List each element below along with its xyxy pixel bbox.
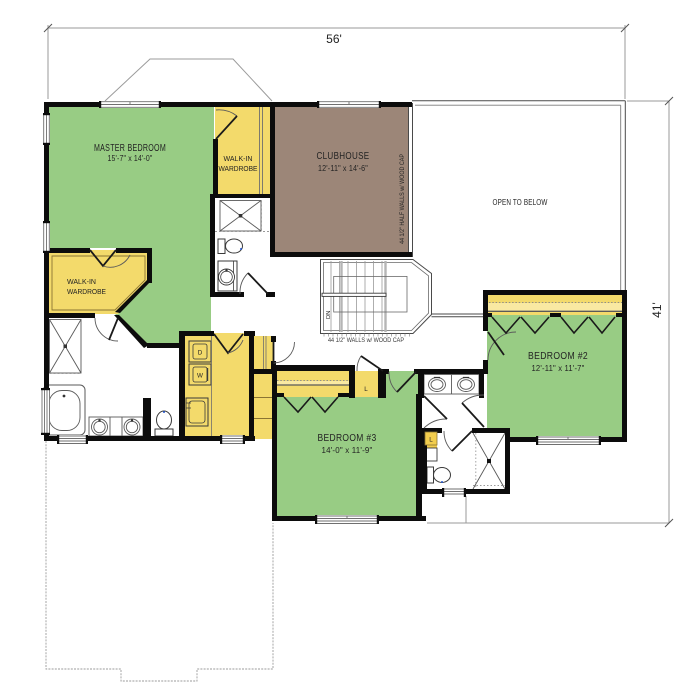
svg-text:D: D — [198, 350, 203, 357]
svg-text:DN: DN — [326, 311, 332, 319]
svg-text:44 1/2" HALF WALLS w/ WOOD CAP: 44 1/2" HALF WALLS w/ WOOD CAP — [399, 154, 406, 244]
svg-text:WALK-IN: WALK-IN — [67, 277, 96, 286]
svg-text:OPEN TO BELOW: OPEN TO BELOW — [493, 197, 548, 207]
svg-text:W: W — [197, 373, 203, 380]
svg-text:L: L — [364, 386, 368, 393]
svg-text:WARDROBE: WARDROBE — [219, 164, 258, 173]
svg-text:56': 56' — [326, 32, 342, 46]
svg-text:BEDROOM #2: BEDROOM #2 — [528, 351, 588, 362]
svg-text:12'-11" x 14'-6": 12'-11" x 14'-6" — [318, 163, 368, 173]
svg-text:WARDROBE: WARDROBE — [67, 287, 106, 296]
svg-text:44 1/2" WALLS w/ WOOD CAP: 44 1/2" WALLS w/ WOOD CAP — [328, 337, 404, 344]
svg-text:CLUBHOUSE: CLUBHOUSE — [317, 151, 370, 162]
svg-text:15'-7" x 14'-0": 15'-7" x 14'-0" — [108, 153, 153, 163]
svg-text:14'-0" x 11'-9": 14'-0" x 11'-9" — [322, 445, 373, 455]
svg-text:WALK-IN: WALK-IN — [224, 154, 253, 163]
svg-text:BEDROOM #3: BEDROOM #3 — [318, 433, 377, 444]
svg-text:L: L — [429, 437, 433, 444]
svg-text:12'-11" x 11'-7": 12'-11" x 11'-7" — [532, 363, 585, 373]
svg-text:41': 41' — [650, 302, 664, 318]
